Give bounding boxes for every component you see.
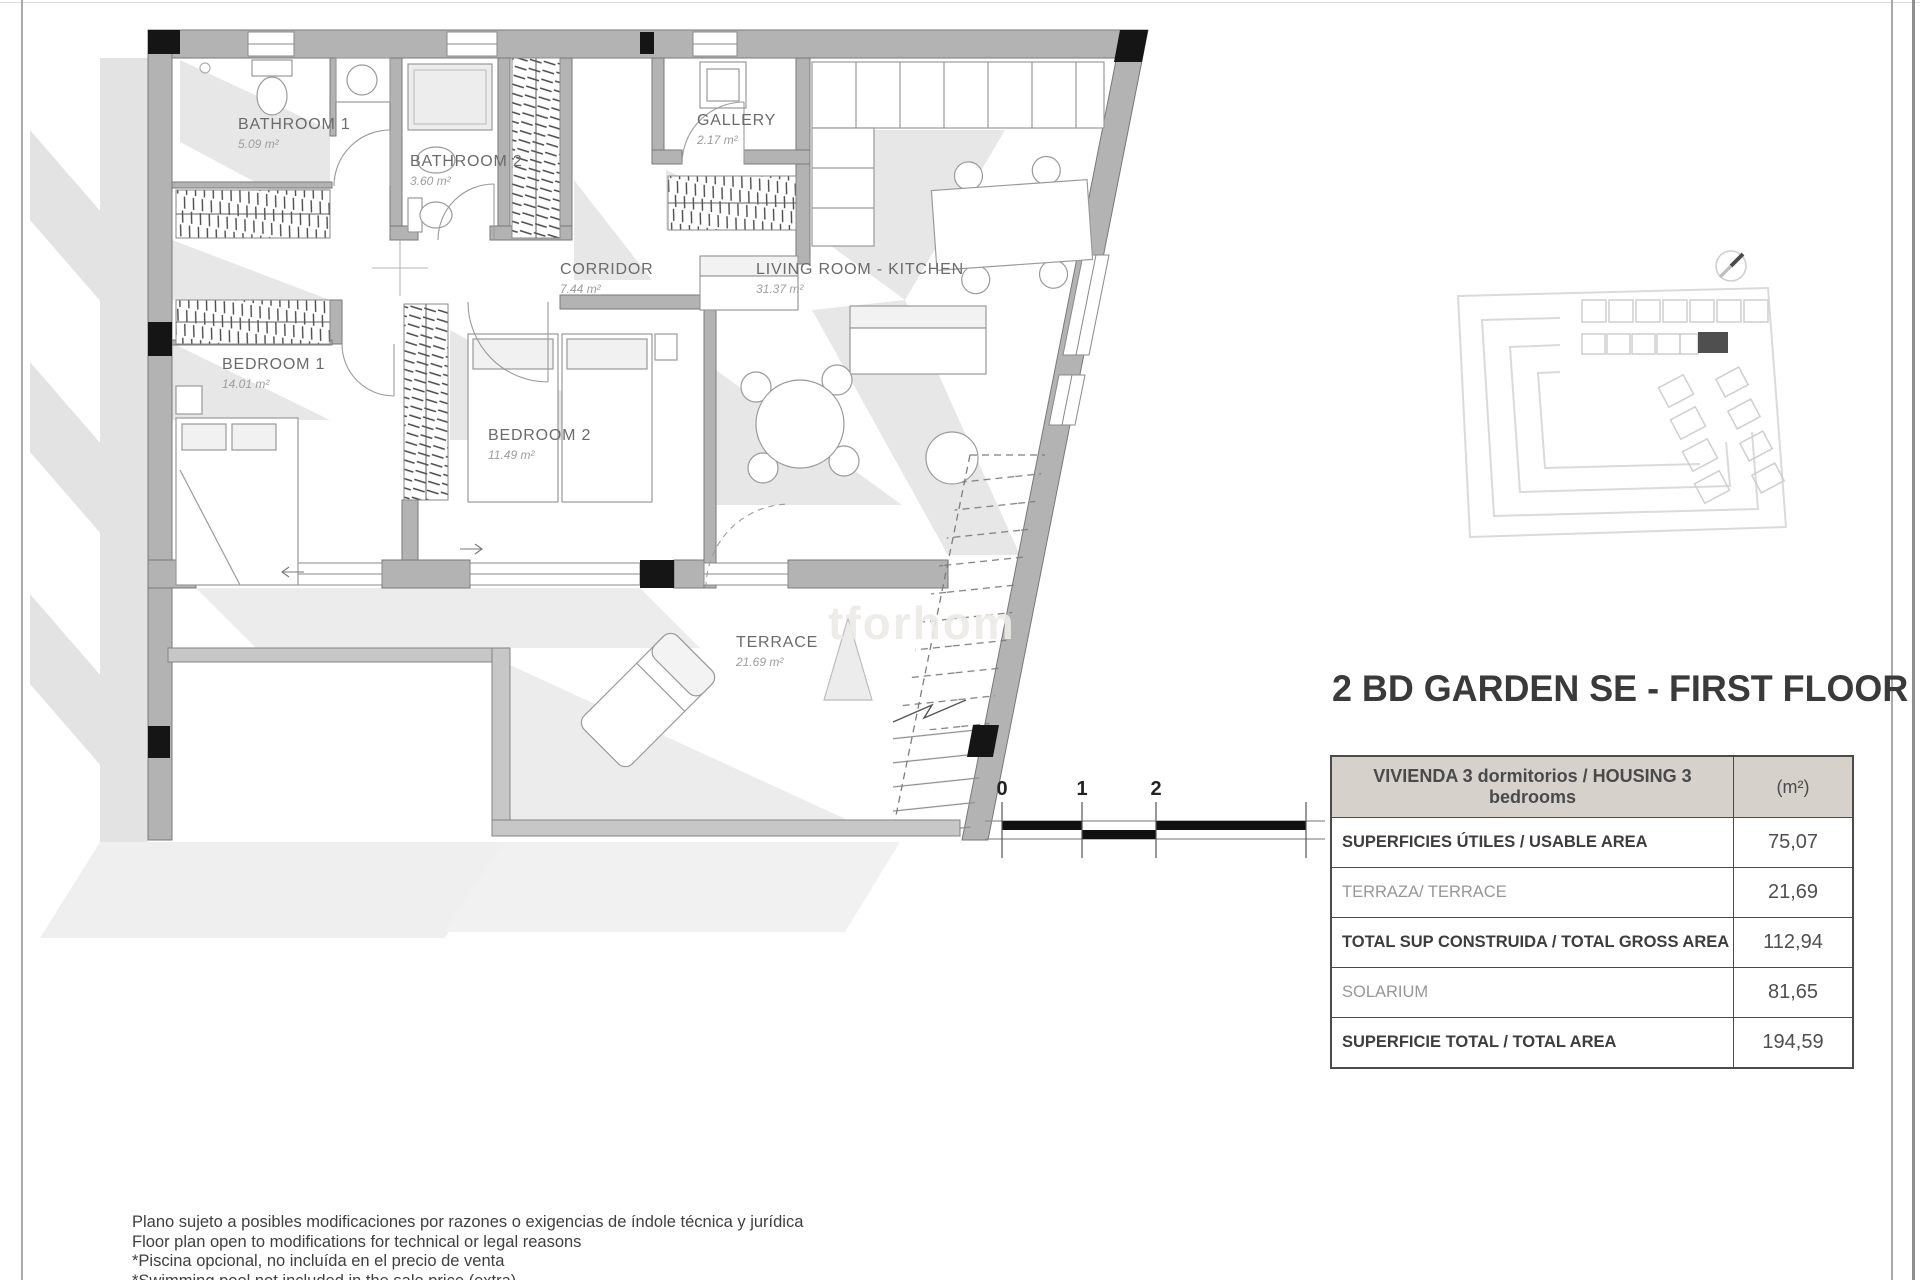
row-value-terrace: 21,69: [1734, 868, 1854, 918]
bed-2: [468, 334, 677, 502]
disclaimer-line: Plano sujeto a posibles modificaciones p…: [132, 1213, 803, 1233]
scale-label-1: 1: [1070, 778, 1094, 801]
survey-cross: [372, 240, 428, 296]
floorplan-sheet: BATHROOM 1 5.09 m² BATHROOM 2 3.60 m² GA…: [0, 0, 1920, 1280]
table-header-row: VIVIENDA 3 dormitorios / HOUSING 3 bedro…: [1331, 756, 1853, 818]
row-value-solarium: 81,65: [1734, 968, 1854, 1018]
row-value-usable-area: 75,07: [1734, 818, 1854, 868]
row-label-usable-area: SUPERFICIES ÚTILES / USABLE AREA: [1331, 818, 1734, 868]
area-table: VIVIENDA 3 dormitorios / HOUSING 3 bedro…: [1330, 755, 1854, 1069]
row-label-total-area: SUPERFICIE TOTAL / TOTAL AREA: [1331, 1018, 1734, 1069]
toilet-1: [252, 60, 292, 76]
site-map: [1458, 288, 1786, 537]
table-header-unit: (m²): [1734, 756, 1854, 818]
table-row: SUPERFICIES ÚTILES / USABLE AREA 75,07: [1331, 818, 1853, 868]
disclaimer-text: Plano sujeto a posibles modificaciones p…: [132, 1213, 803, 1280]
scale-bar: [985, 802, 1325, 858]
table-row: TOTAL SUP CONSTRUIDA / TOTAL GROSS AREA …: [1331, 918, 1853, 968]
scale-label-0: 0: [990, 778, 1014, 801]
row-value-gross-area: 112,94: [1734, 918, 1854, 968]
disclaimer-line: *Swimming pool not included in the sale …: [132, 1272, 803, 1280]
shower-tray: [408, 64, 492, 130]
north-arrow-icon: [1716, 251, 1746, 281]
row-value-total-area: 194,59: [1734, 1018, 1854, 1069]
room-label-corridor: CORRIDOR 7.44 m²: [560, 261, 654, 296]
disclaimer-line: Floor plan open to modifications for tec…: [132, 1233, 803, 1253]
room-label-bedroom-2: BEDROOM 2 11.49 m²: [488, 427, 591, 462]
row-label-terrace: TERRAZA/ TERRACE: [1331, 868, 1734, 918]
toilet-2: [420, 202, 452, 228]
page-title: 2 BD GARDEN SE - FIRST FLOOR: [1332, 668, 1908, 710]
tree: [824, 618, 872, 700]
floor-plan-drawing: [0, 0, 1920, 1280]
room-label-bathroom-1: BATHROOM 1 5.09 m²: [238, 116, 351, 151]
room-label-living-room: LIVING ROOM - KITCHEN 31.37 m²: [756, 261, 964, 296]
scale-label-2: 2: [1144, 778, 1168, 801]
highlighted-unit: [1698, 332, 1728, 353]
room-label-bedroom-1: BEDROOM 1 14.01 m²: [222, 356, 325, 391]
table-row: SOLARIUM 81,65: [1331, 968, 1853, 1018]
room-label-terrace: TERRACE 21.69 m²: [736, 634, 818, 669]
table-header-label: VIVIENDA 3 dormitorios / HOUSING 3 bedro…: [1331, 756, 1734, 818]
row-label-solarium: SOLARIUM: [1331, 968, 1734, 1018]
table-row: SUPERFICIE TOTAL / TOTAL AREA 194,59: [1331, 1018, 1853, 1069]
disclaimer-line: *Piscina opcional, no incluída en el pre…: [132, 1252, 803, 1272]
room-label-bathroom-2: BATHROOM 2 3.60 m²: [410, 153, 523, 188]
sink-1: [347, 65, 377, 95]
row-label-gross-area: TOTAL SUP CONSTRUIDA / TOTAL GROSS AREA: [1331, 918, 1734, 968]
table-row: TERRAZA/ TERRACE 21,69: [1331, 868, 1853, 918]
room-label-gallery: GALLERY 2.17 m²: [697, 112, 776, 147]
